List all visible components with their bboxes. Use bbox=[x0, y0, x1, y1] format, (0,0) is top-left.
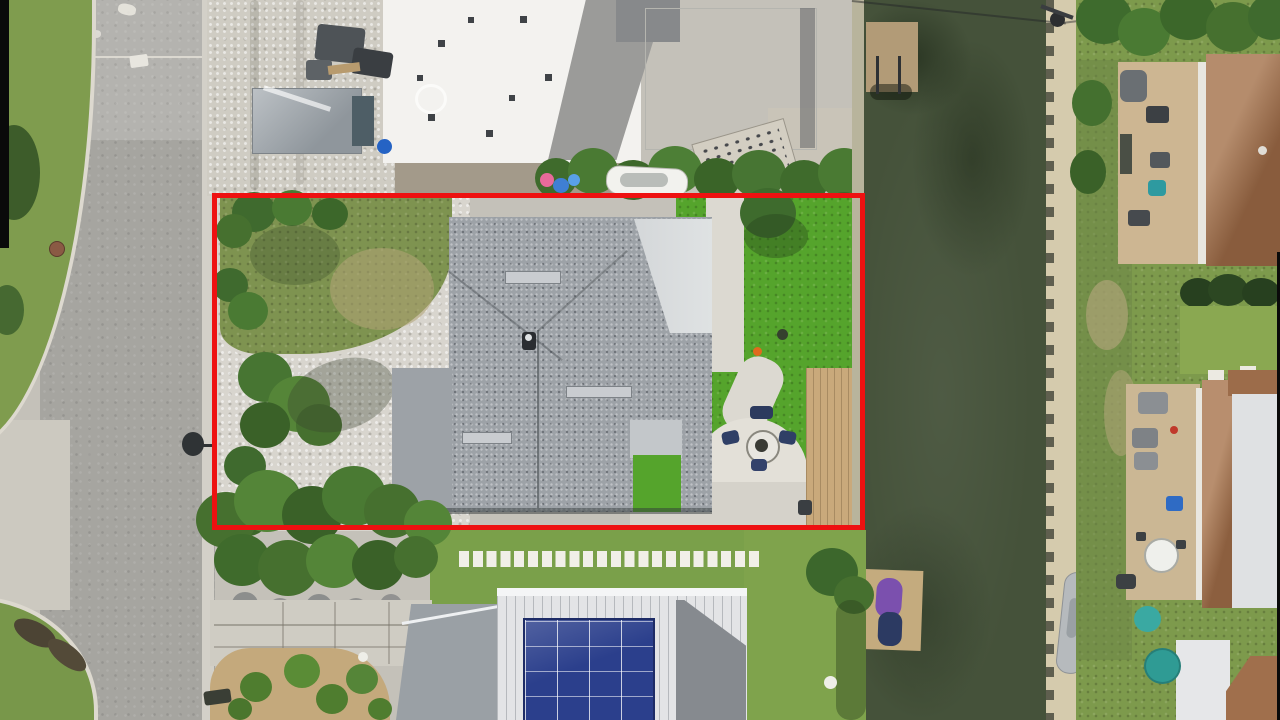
patio-chair bbox=[1176, 540, 1186, 549]
patio-chair bbox=[1136, 532, 1146, 541]
dinghy-interior bbox=[620, 173, 668, 187]
brown-roof-band bbox=[1228, 370, 1280, 396]
teal-umbrella bbox=[1144, 648, 1181, 684]
patio-furniture bbox=[1128, 210, 1150, 226]
white-dish bbox=[824, 676, 837, 689]
pool-float-pink bbox=[540, 173, 554, 187]
dark-container bbox=[352, 96, 374, 146]
roof-vent-dot bbox=[1258, 146, 1267, 155]
palm bbox=[228, 698, 252, 720]
parked-car bbox=[1120, 70, 1147, 102]
sandbag bbox=[486, 130, 493, 137]
tree-canopy bbox=[1072, 80, 1112, 126]
solar-panel-array bbox=[523, 618, 655, 720]
grill bbox=[1116, 574, 1136, 589]
palm bbox=[240, 672, 272, 702]
planter-box bbox=[1120, 134, 1132, 174]
red-item bbox=[1170, 426, 1178, 434]
pool-float-blue bbox=[568, 174, 580, 186]
sandbag bbox=[428, 114, 435, 121]
patio-furniture bbox=[1150, 152, 1170, 168]
dirt-patch bbox=[1086, 280, 1128, 350]
palm bbox=[368, 698, 392, 720]
mailbox bbox=[129, 54, 148, 68]
tree-shadow-strip bbox=[836, 600, 866, 720]
ribbed-roof-shadow-edge bbox=[800, 8, 815, 148]
property-boundary-outline bbox=[212, 193, 865, 530]
palm bbox=[284, 654, 320, 688]
joint-line bbox=[214, 624, 428, 626]
dark-hedge bbox=[1242, 278, 1280, 308]
boat-lift-frame bbox=[898, 56, 901, 94]
sandbag bbox=[545, 74, 552, 81]
brown-roof-top-right bbox=[1206, 54, 1280, 266]
blue-cooler bbox=[1166, 496, 1183, 511]
pool-float-blue bbox=[553, 178, 569, 193]
ribbed-metal-roof bbox=[645, 8, 817, 150]
boat-lift-frame bbox=[876, 56, 879, 94]
right-lawn bbox=[1180, 306, 1280, 374]
white-metal-roof-lower bbox=[1232, 394, 1280, 608]
teal-umbrella bbox=[1134, 606, 1161, 632]
patio-furniture bbox=[1132, 428, 1158, 448]
round-table-white bbox=[1144, 538, 1179, 573]
far-seawall-pilings bbox=[1046, 0, 1054, 720]
sandbag bbox=[468, 17, 474, 23]
blue-barrel bbox=[377, 139, 392, 154]
jetski-navy bbox=[877, 612, 902, 647]
white-ball bbox=[358, 652, 368, 662]
hedge bbox=[394, 536, 438, 578]
tree-canopy bbox=[1070, 150, 1106, 194]
stepping-paver-row bbox=[459, 551, 759, 567]
sandbag bbox=[438, 40, 445, 47]
palm bbox=[346, 664, 378, 694]
sandbag bbox=[417, 75, 423, 81]
neighbor-dock-top bbox=[866, 22, 918, 92]
shed-roof bbox=[252, 88, 362, 154]
white-roof-corner bbox=[1176, 640, 1230, 720]
white-trim bbox=[1198, 62, 1206, 264]
coiled-hose bbox=[415, 84, 447, 114]
manhole-cover bbox=[49, 241, 65, 257]
patio-furniture bbox=[1134, 452, 1158, 470]
ridge-highlight bbox=[497, 588, 747, 596]
sandbag bbox=[509, 95, 515, 101]
patio-furniture bbox=[1138, 392, 1168, 414]
letterbox-left bbox=[0, 0, 9, 248]
sandbag bbox=[520, 16, 527, 23]
joint-line bbox=[388, 602, 390, 664]
aerial-photo bbox=[0, 0, 1280, 720]
sidewalk-concrete bbox=[0, 420, 70, 610]
patio-furniture bbox=[1146, 106, 1169, 123]
teal-chair bbox=[1148, 180, 1166, 196]
palm bbox=[316, 684, 348, 714]
